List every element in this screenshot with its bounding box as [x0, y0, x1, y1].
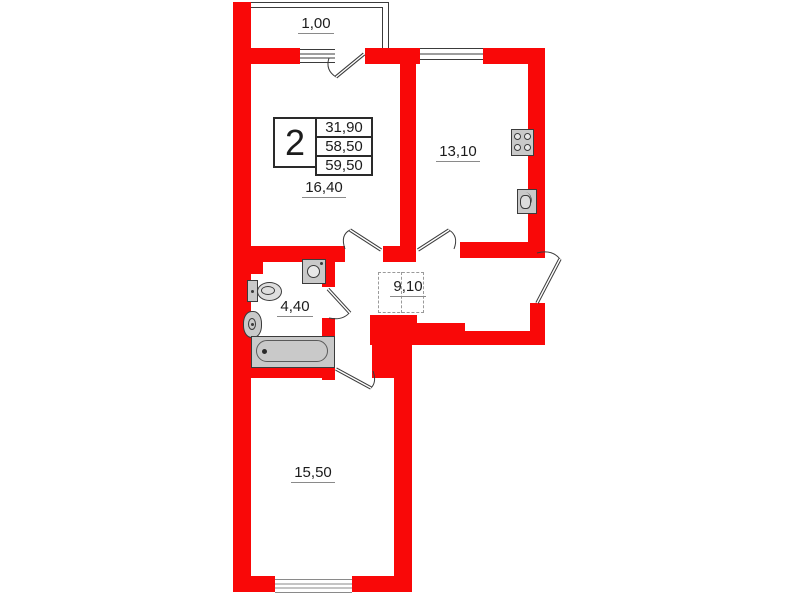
washing-machine-icon — [302, 259, 326, 284]
area-table: 2 31,90 58,50 59,50 — [273, 117, 373, 168]
entrance-door-swing — [537, 252, 560, 303]
floor-plan: 2 31,90 58,50 59,50 1,00 16,40 13,10 4,4… — [0, 0, 800, 600]
wall-balcony-sill-left — [251, 48, 300, 64]
kitchen-sink-icon — [517, 189, 537, 214]
stove-icon — [511, 129, 534, 156]
wall-hall-bottom-b — [417, 323, 465, 345]
wall-bedroom-bottom-left — [233, 576, 275, 592]
living-door-swing — [343, 230, 381, 250]
wall-bedroom-right — [394, 378, 412, 592]
wall-hall-bottom-c — [465, 331, 530, 345]
wall-door-stub — [383, 246, 416, 262]
wall-bath-top — [251, 246, 345, 262]
room-label-kitchen: 13,10 — [428, 143, 488, 162]
bedroom-door-swing — [336, 369, 375, 388]
wall-hall-bottom-a — [370, 315, 417, 345]
area-total: 59,50 — [315, 155, 373, 176]
kitchen-window — [420, 48, 483, 60]
bathtub-icon — [251, 336, 335, 368]
wall-living-kitchen-divider — [400, 64, 416, 246]
bathroom-door-swing — [328, 289, 350, 319]
room-label-living: 16,40 — [294, 179, 354, 198]
balcony-window — [300, 49, 335, 63]
bathroom-sink-icon — [243, 311, 262, 338]
wall-balcony-sill-right — [365, 48, 420, 64]
area-without-balcony: 58,50 — [315, 136, 373, 157]
wall-kitchen-bottom — [460, 242, 545, 258]
room-label-bedroom: 15,50 — [283, 464, 343, 483]
area-living-total: 31,90 — [315, 117, 373, 138]
room-label-balcony: 1,00 — [290, 15, 342, 34]
area-values-column: 31,90 58,50 59,50 — [315, 117, 373, 168]
room-label-bathroom: 4,40 — [271, 298, 319, 317]
room-label-hallway: 9,10 — [384, 278, 432, 297]
wall-bedroom-bottom-right — [352, 576, 412, 592]
bedroom-window — [275, 579, 352, 593]
room-count: 2 — [273, 117, 317, 168]
wall-hall-bedroom-join — [372, 345, 412, 378]
wall-bath-duct — [251, 262, 263, 274]
wall-entry-stub — [530, 303, 545, 345]
kitchen-door-swing — [418, 230, 456, 250]
